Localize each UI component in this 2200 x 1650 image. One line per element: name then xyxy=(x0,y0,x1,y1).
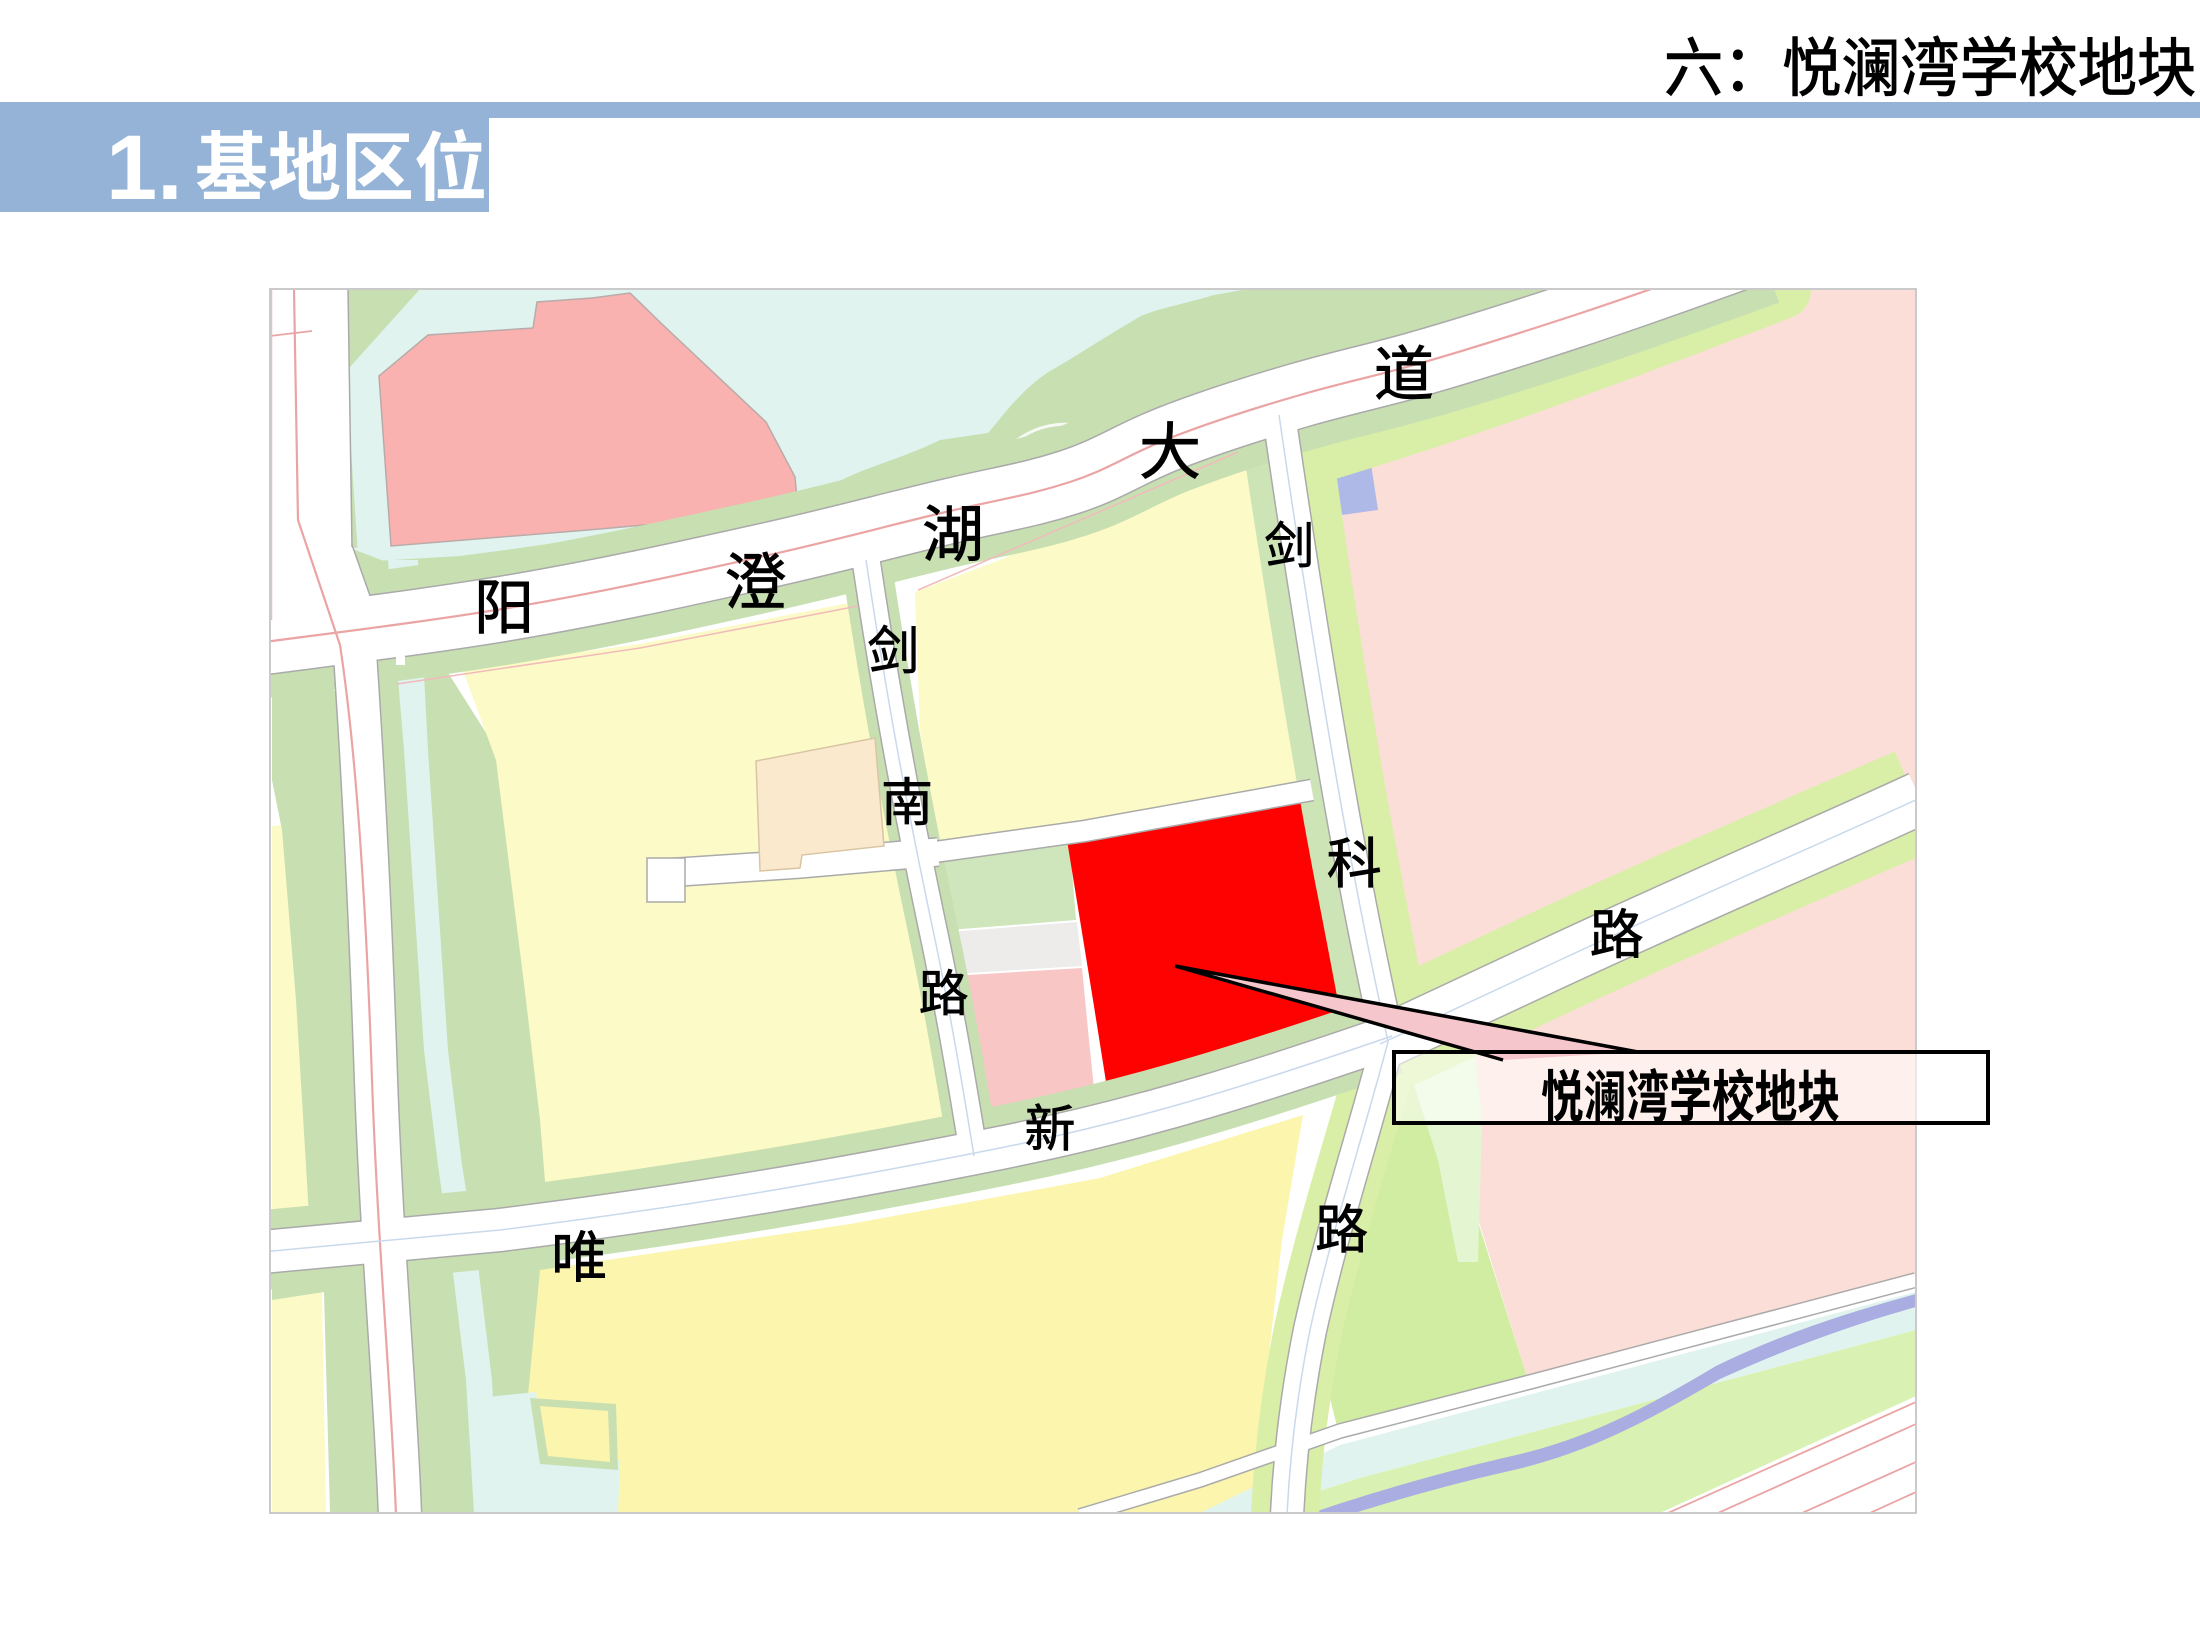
svg-text:1.: 1. xyxy=(106,117,183,219)
